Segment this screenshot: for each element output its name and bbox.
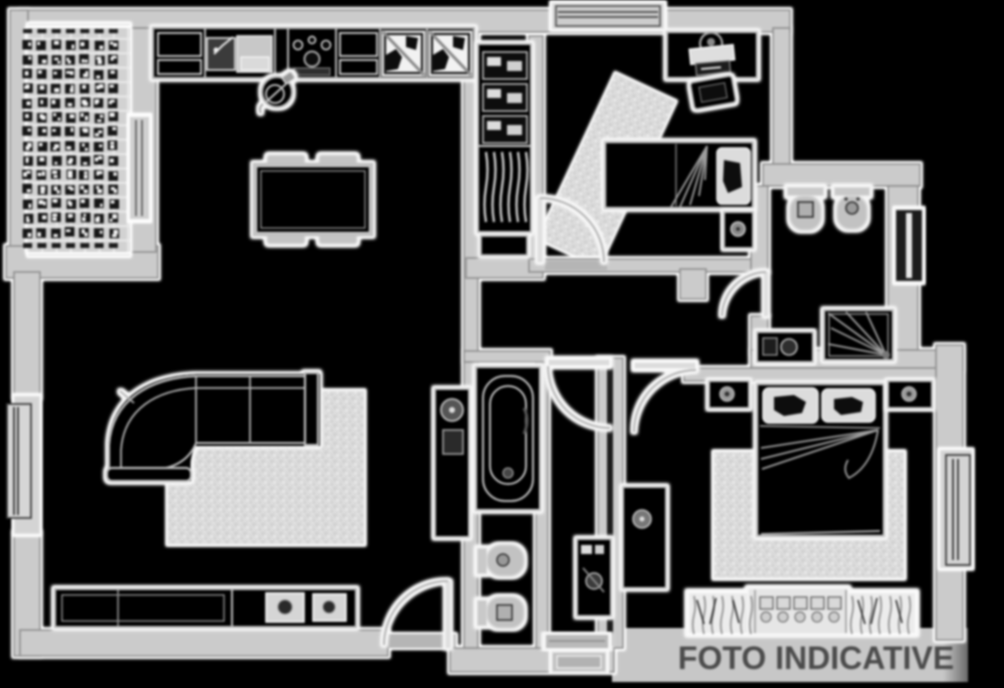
svg-text:FOTO INDICATIVE: FOTO INDICATIVE [678, 640, 954, 676]
